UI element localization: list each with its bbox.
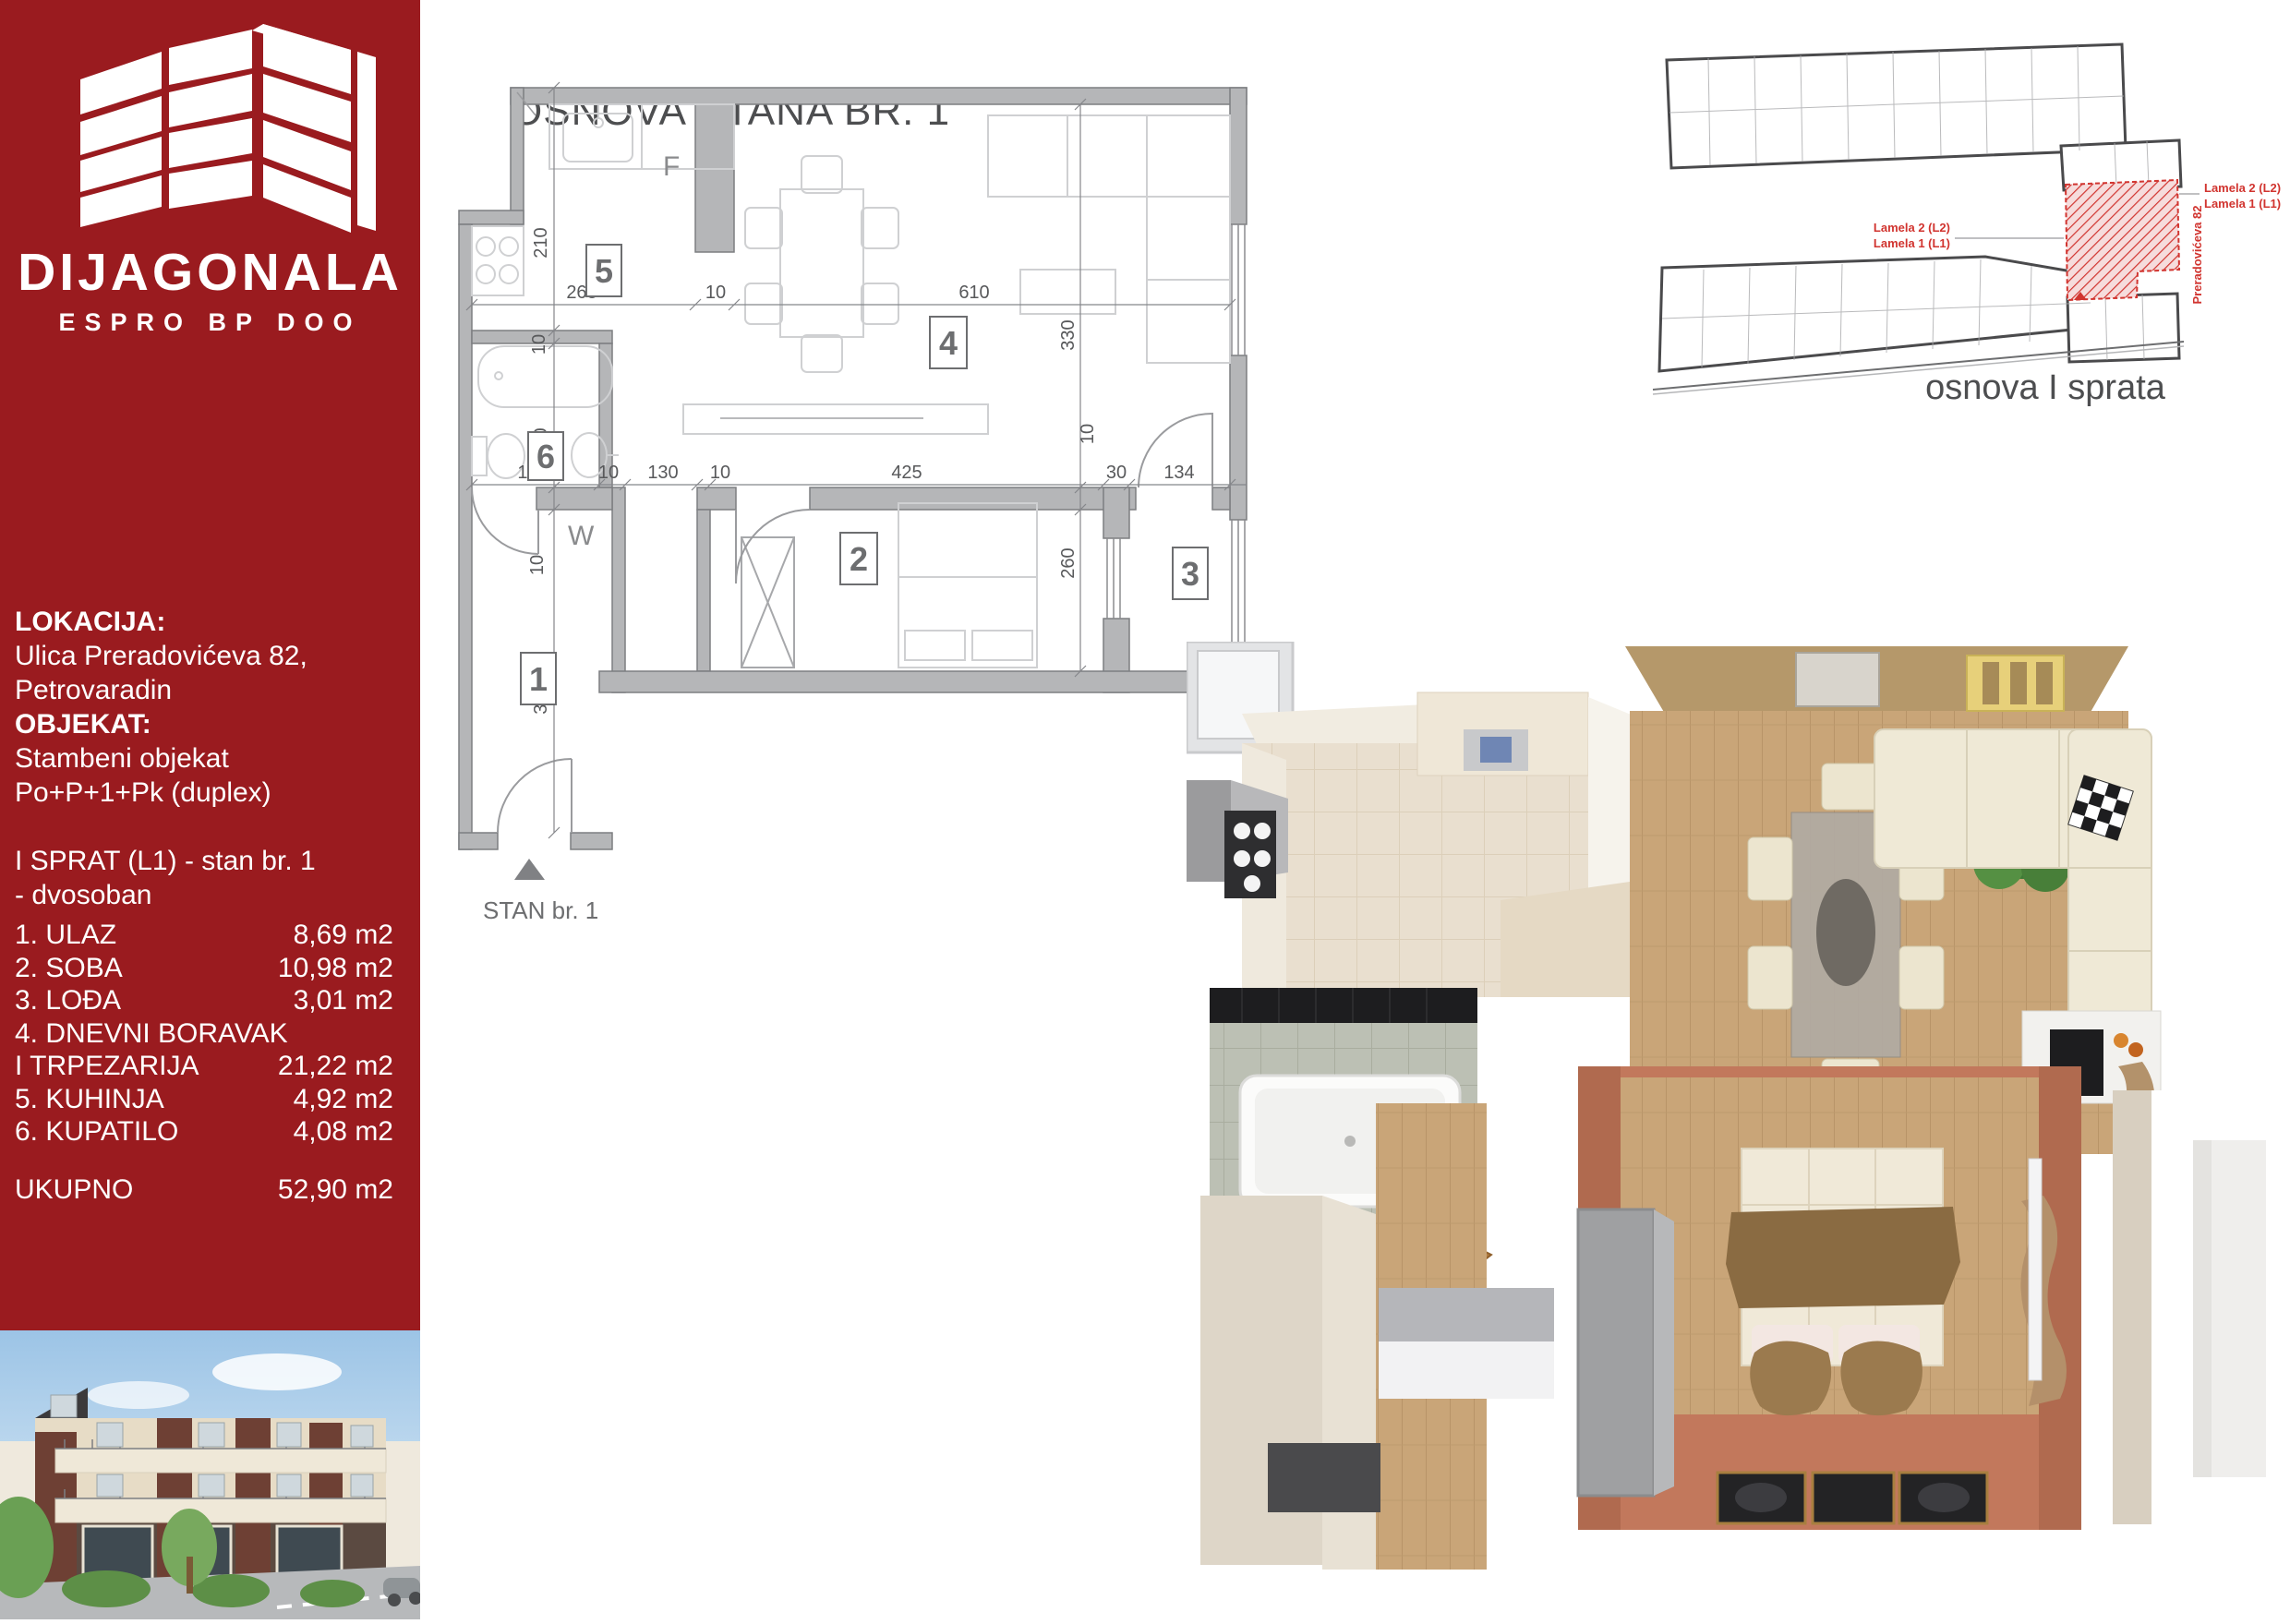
sidebar: DIJAGONALA ESPRO BP DOO LOKACIJA: Ulica … bbox=[0, 0, 420, 1330]
room-name: 4. DNEVNI BORAVAK bbox=[15, 1017, 288, 1051]
fridge-label: F bbox=[663, 151, 680, 182]
room-row: 5. KUHINJA4,92 m2 bbox=[15, 1083, 393, 1116]
building-exterior-photo bbox=[0, 1330, 420, 1619]
room-number-1: 1 bbox=[529, 660, 548, 698]
room-row: 6. KUPATILO4,08 m2 bbox=[15, 1115, 393, 1149]
dim-425: 425 bbox=[891, 463, 922, 483]
entrance-arrow-icon bbox=[514, 859, 545, 880]
render-loggia bbox=[2113, 1090, 2266, 1524]
unit-line2: - dvosoban bbox=[15, 878, 406, 912]
location-line2: Petrovaradin bbox=[15, 673, 406, 707]
dim-210: 210 bbox=[531, 227, 551, 258]
brand-name: DIJAGONALA bbox=[0, 242, 420, 303]
render-bedroom bbox=[1578, 1066, 2081, 1530]
dim-10: 10 bbox=[710, 463, 730, 483]
dim-30: 30 bbox=[1106, 463, 1127, 483]
walls bbox=[459, 88, 1247, 849]
dim-10: 10 bbox=[598, 463, 619, 483]
room-name: 1. ULAZ bbox=[15, 919, 116, 952]
floor-overview-plan: Lamela 2 (L2) Lamela 1 (L1) Lamela 2 (L2… bbox=[1644, 37, 2290, 425]
room-number-5: 5 bbox=[595, 252, 613, 290]
room-list: 1. ULAZ8,69 m2 2. SOBA10,98 m2 3. LOĐA3,… bbox=[15, 919, 393, 1149]
render-kitchen bbox=[1187, 692, 1667, 997]
lamela1-label-right: Lamela 1 (L1) bbox=[2204, 197, 2281, 211]
floor-plan: 263 10 610 170 10 130 10 425 30 134 210 … bbox=[443, 78, 1293, 956]
door-arcs bbox=[472, 92, 1212, 833]
highlighted-apartment bbox=[2066, 180, 2179, 300]
location-label: LOKACIJA: bbox=[15, 605, 406, 639]
dim-134: 134 bbox=[1163, 463, 1194, 483]
room-name: 3. LOĐA bbox=[15, 984, 121, 1017]
object-line2: Po+P+1+Pk (duplex) bbox=[15, 776, 406, 810]
brand-subtitle: ESPRO BP DOO bbox=[0, 308, 420, 337]
room-row: I TRPEZARIJA21,22 m2 bbox=[15, 1050, 393, 1083]
room-row: 3. LOĐA3,01 m2 bbox=[15, 984, 393, 1017]
pillow-icon bbox=[1750, 1341, 1831, 1416]
flyer-page: DIJAGONALA ESPRO BP DOO LOKACIJA: Ulica … bbox=[0, 0, 2290, 1619]
object-label: OBJEKAT: bbox=[15, 707, 406, 741]
street-label: Preradovićeva 82 bbox=[2190, 206, 2204, 305]
washer-label: W bbox=[568, 521, 595, 551]
room-area: 21,22 m2 bbox=[278, 1050, 393, 1083]
blanket-icon bbox=[1726, 1207, 1960, 1308]
room-number-4: 4 bbox=[939, 324, 958, 362]
dim-10: 10 bbox=[705, 283, 726, 303]
total-row: UKUPNO 52,90 m2 bbox=[15, 1174, 393, 1206]
room-number-3: 3 bbox=[1181, 555, 1199, 593]
dim-10: 10 bbox=[529, 334, 549, 355]
room-name: I TRPEZARIJA bbox=[15, 1050, 199, 1083]
total-area: 52,90 m2 bbox=[278, 1174, 393, 1206]
room-row: 1. ULAZ8,69 m2 bbox=[15, 919, 393, 952]
overview-caption: osnova I sprata bbox=[1925, 368, 2166, 407]
dim-130: 130 bbox=[647, 463, 678, 483]
room-row: 4. DNEVNI BORAVAK bbox=[15, 1017, 393, 1051]
room-name: 2. SOBA bbox=[15, 952, 123, 985]
dim-10: 10 bbox=[1078, 424, 1098, 444]
project-info: LOKACIJA: Ulica Preradovićeva 82, Petrov… bbox=[15, 605, 406, 912]
room-number-2: 2 bbox=[850, 540, 868, 578]
apartment-3d-render bbox=[1187, 642, 2281, 1619]
room-area: 4,08 m2 bbox=[294, 1115, 393, 1149]
room-number-6: 6 bbox=[536, 438, 555, 475]
dim-330: 330 bbox=[1058, 319, 1079, 350]
room-name: 6. KUPATILO bbox=[15, 1115, 178, 1149]
lamela1-label: Lamela 1 (L1) bbox=[1874, 236, 1950, 250]
room-row: 2. SOBA10,98 m2 bbox=[15, 952, 393, 985]
room-name: 5. KUHINJA bbox=[15, 1083, 164, 1116]
dim-lines bbox=[466, 82, 1247, 838]
room-area: 4,92 m2 bbox=[294, 1083, 393, 1116]
dim-610: 610 bbox=[958, 283, 989, 303]
room-area: 8,69 m2 bbox=[294, 919, 393, 952]
room-area: 10,98 m2 bbox=[278, 952, 393, 985]
unit-marker: STAN br. 1 bbox=[483, 896, 598, 924]
company-logo-icon bbox=[32, 13, 388, 240]
total-label: UKUPNO bbox=[15, 1174, 133, 1206]
lamela2-label: Lamela 2 (L2) bbox=[1874, 221, 1950, 235]
dim-260: 260 bbox=[1058, 547, 1079, 578]
pillow-icon bbox=[1840, 1341, 1922, 1416]
object-line1: Stambeni objekat bbox=[15, 741, 406, 776]
dim-10: 10 bbox=[527, 555, 548, 575]
room-area: 3,01 m2 bbox=[294, 984, 393, 1017]
unit-line1: I SPRAT (L1) - stan br. 1 bbox=[15, 844, 406, 878]
location-line1: Ulica Preradovićeva 82, bbox=[15, 639, 406, 673]
lamela2-label-right: Lamela 2 (L2) bbox=[2204, 181, 2281, 195]
